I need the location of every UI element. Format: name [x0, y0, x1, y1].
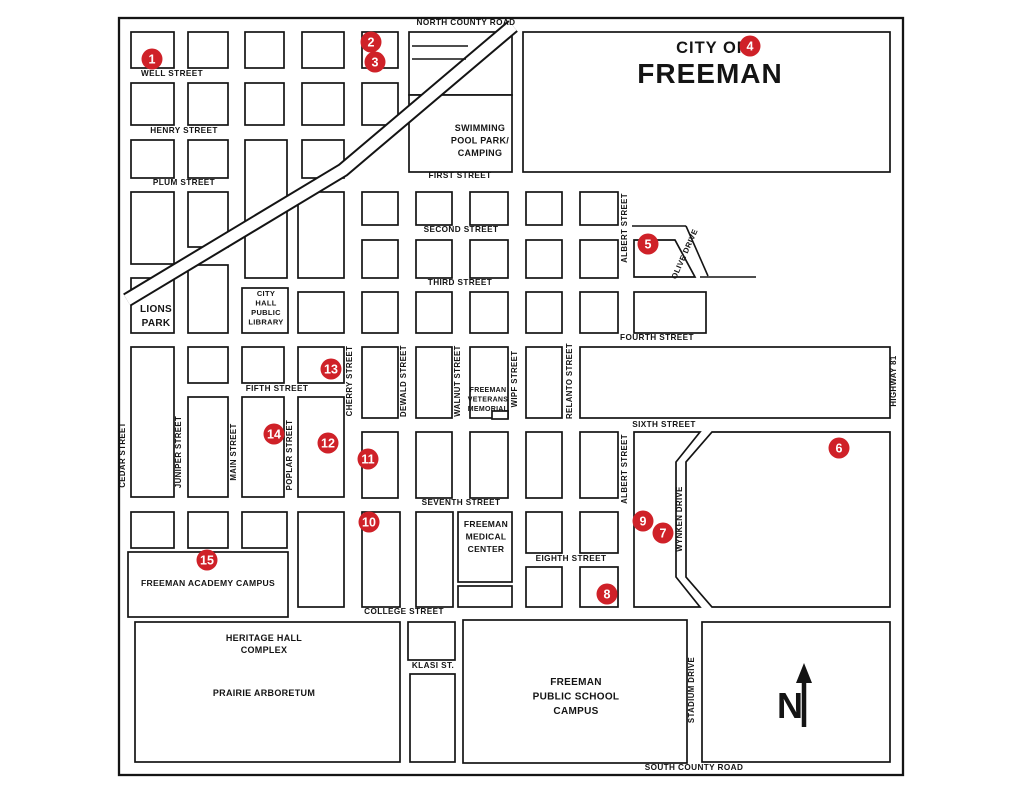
city-block — [580, 512, 618, 553]
map-title-prefix: CITY OF — [676, 39, 748, 57]
city-block — [580, 192, 618, 225]
street-label-well-street: WELL STREET — [141, 69, 203, 78]
city-block — [131, 140, 174, 178]
area-label-swimming-pool-park: SWIMMING — [455, 123, 505, 133]
area-label-prairie-arboretum: PRAIRIE ARBORETUM — [213, 688, 315, 698]
city-block — [580, 432, 618, 498]
map-marker-8: 8 — [597, 584, 618, 605]
freeman-city-map-page: NORTH COUNTY ROADWELL STREETHENRY STREET… — [0, 0, 1024, 791]
street-label-dewald-street: DEWALD STREET — [399, 345, 408, 417]
area-label-heritage-hall-complex: HERITAGE HALL — [226, 633, 302, 643]
area-label-city-hall-public-library: HALL — [255, 299, 276, 308]
area-label-freeman-public-school-campus: CAMPUS — [553, 706, 598, 717]
city-block — [188, 83, 228, 125]
street-label-main-street: MAIN STREET — [229, 423, 238, 480]
map-marker-12: 12 — [318, 433, 339, 454]
marker-number: 15 — [200, 554, 214, 568]
city-block — [580, 240, 618, 278]
area-label-freeman-veterans-memorial: VETERANS — [468, 397, 509, 404]
map-marker-5: 5 — [638, 234, 659, 255]
street-label-wipf-street: WIPF STREET — [510, 351, 519, 408]
city-block — [686, 432, 890, 607]
city-block — [131, 347, 174, 497]
city-block — [416, 432, 452, 498]
marker-number: 2 — [368, 36, 375, 50]
city-block — [188, 140, 228, 178]
city-block — [408, 622, 455, 660]
street-label-poplar-street: POPLAR STREET — [285, 420, 294, 491]
north-letter: N — [777, 685, 803, 726]
map-marker-3: 3 — [365, 52, 386, 73]
map-marker-15: 15 — [197, 550, 218, 571]
city-block — [470, 432, 508, 498]
city-block — [580, 347, 890, 418]
city-block — [470, 292, 508, 333]
city-block — [458, 586, 512, 607]
city-block — [580, 292, 618, 333]
map-marker-2: 2 — [361, 32, 382, 53]
marker-number: 1 — [149, 53, 156, 67]
city-block — [416, 192, 452, 225]
map-marker-14: 14 — [264, 424, 285, 445]
street-label-sixth-street: SIXTH STREET — [632, 420, 695, 429]
city-block — [526, 292, 562, 333]
marker-number: 14 — [267, 428, 281, 442]
area-label-city-hall-public-library: PUBLIC — [251, 308, 281, 317]
street-label-relanto-street: RELANTO STREET — [565, 343, 574, 419]
city-block — [416, 512, 453, 607]
city-block — [131, 512, 174, 548]
city-block — [526, 347, 562, 418]
city-block — [298, 192, 344, 278]
street-label-fourth-street: FOURTH STREET — [620, 333, 694, 342]
street-label-seventh-street: SEVENTH STREET — [422, 498, 501, 507]
street-label-henry-street: HENRY STREET — [150, 126, 218, 135]
area-label-swimming-pool-park: CAMPING — [458, 148, 503, 158]
marker-number: 4 — [747, 40, 754, 54]
area-label-freeman-veterans-memorial: MEMORIAL — [468, 406, 509, 413]
area-label-freeman-public-school-campus: FREEMAN — [550, 677, 602, 688]
city-block — [526, 512, 562, 553]
area-label-city-hall-public-library: LIBRARY — [248, 318, 283, 327]
area-label-heritage-hall-complex: COMPLEX — [241, 645, 288, 655]
area-label-city-hall-public-library: CITY — [257, 289, 275, 298]
city-block — [526, 567, 562, 607]
street-label-college-street: COLLEGE STREET — [364, 607, 444, 616]
area-label-lions-park: PARK — [142, 318, 171, 329]
marker-number: 3 — [372, 56, 379, 70]
freeman-city-map: NORTH COUNTY ROADWELL STREETHENRY STREET… — [0, 0, 1024, 791]
area-label-swimming-pool-park: POOL PARK/ — [451, 136, 509, 146]
city-block — [362, 347, 398, 418]
map-marker-11: 11 — [358, 449, 379, 470]
city-block — [416, 240, 452, 278]
city-block — [416, 347, 452, 418]
street-label-north-county-road: NORTH COUNTY ROAD — [417, 18, 516, 27]
map-marker-10: 10 — [359, 512, 380, 533]
city-block — [416, 292, 452, 333]
marker-number: 11 — [361, 453, 374, 467]
city-block — [470, 192, 508, 225]
city-block — [298, 292, 344, 333]
city-block — [302, 32, 344, 68]
city-block — [188, 32, 228, 68]
city-block — [362, 192, 398, 225]
map-marker-6: 6 — [829, 438, 850, 459]
map-title-name: FREEMAN — [637, 58, 782, 89]
city-block — [362, 240, 398, 278]
street-label-juniper-street: JUNIPER STREET — [174, 416, 183, 488]
city-block — [245, 32, 284, 68]
area-label-freeman-medical-center: FREEMAN — [464, 519, 508, 529]
map-marker-1: 1 — [142, 49, 163, 70]
area-label-freeman-medical-center: MEDICAL — [466, 532, 507, 542]
map-marker-9: 9 — [633, 511, 654, 532]
marker-number: 7 — [660, 527, 667, 541]
street-label-albert-street: ALBERT STREET — [620, 434, 629, 504]
city-block — [526, 432, 562, 498]
city-block — [410, 674, 455, 762]
city-block — [302, 83, 344, 125]
city-block — [526, 240, 562, 278]
city-block — [362, 292, 398, 333]
street-label-highway-81: HIGHWAY 81 — [889, 355, 898, 406]
city-block — [242, 347, 284, 383]
map-marker-4: 4 — [740, 36, 761, 57]
city-block — [526, 192, 562, 225]
city-block — [245, 83, 284, 125]
marker-number: 8 — [604, 588, 611, 602]
street-label-stadium-drive: STADIUM DRIVE — [687, 657, 696, 723]
marker-number: 9 — [640, 515, 647, 529]
marker-number: 13 — [324, 363, 338, 377]
area-label-freeman-veterans-memorial: FREEMAN — [470, 387, 507, 394]
street-label-second-street: SECOND STREET — [424, 225, 499, 234]
street-label-wynken-drive: WYNKEN DRIVE — [675, 486, 684, 551]
street-label-albert-street: ALBERT STREET — [620, 193, 629, 263]
street-label-eighth-street: EIGHTH STREET — [536, 554, 607, 563]
city-block — [131, 83, 174, 125]
city-block — [188, 347, 228, 383]
street-label-walnut-street: WALNUT STREET — [453, 345, 462, 416]
city-block — [188, 397, 228, 497]
marker-number: 5 — [645, 238, 652, 252]
street-label-cherry-street: CHERRY STREET — [345, 346, 354, 417]
city-block — [470, 240, 508, 278]
city-block — [242, 512, 287, 548]
area-label-freeman-academy-campus: FREEMAN ACADEMY CAMPUS — [141, 578, 275, 588]
street-label-plum-street: PLUM STREET — [153, 178, 215, 187]
area-label-freeman-public-school-campus: PUBLIC SCHOOL — [533, 692, 620, 703]
street-label-south-county-road: SOUTH COUNTY ROAD — [645, 763, 744, 772]
street-label-first-street: FIRST STREET — [428, 171, 491, 180]
street-label-cedar-street: CEDAR STREET — [118, 422, 127, 487]
street-label-third-street: THIRD STREET — [428, 278, 492, 287]
city-block — [298, 512, 344, 607]
map-marker-13: 13 — [321, 359, 342, 380]
area-label-lions-park: LIONS — [140, 304, 172, 315]
city-block — [188, 512, 228, 548]
city-block — [188, 265, 228, 333]
marker-number: 12 — [321, 437, 335, 451]
map-marker-7: 7 — [653, 523, 674, 544]
city-block — [131, 192, 174, 264]
city-block — [242, 397, 284, 497]
city-block — [634, 292, 706, 333]
area-label-freeman-medical-center: CENTER — [468, 544, 505, 554]
marker-number: 10 — [362, 516, 376, 530]
street-label-fifth-street: FIFTH STREET — [246, 384, 309, 393]
street-label-klasi-st-: KLASI ST. — [412, 661, 454, 670]
marker-number: 6 — [836, 442, 843, 456]
